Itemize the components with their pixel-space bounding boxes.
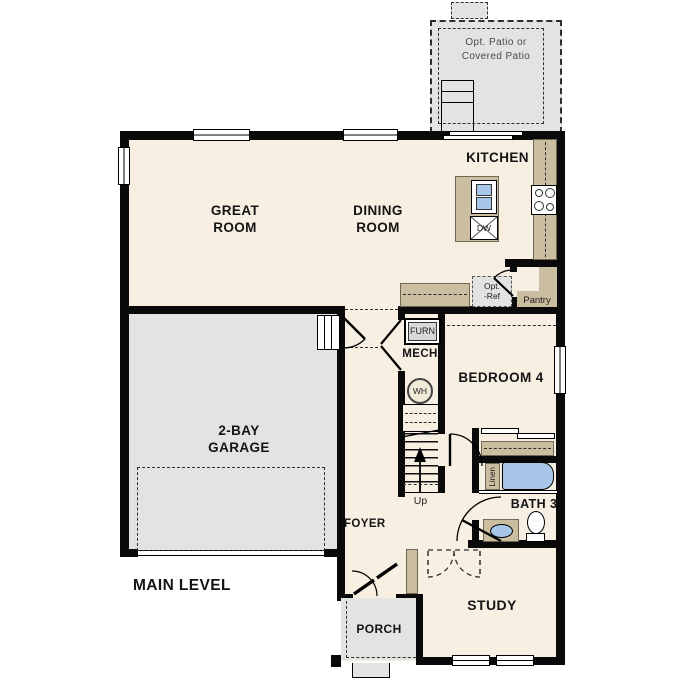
front-door-sidelite bbox=[377, 564, 397, 578]
pantry-door-arc bbox=[494, 270, 513, 278]
mech-bifold-door bbox=[381, 346, 401, 370]
bedroom4-door-arc bbox=[450, 434, 482, 466]
bath3-door-leaf bbox=[462, 520, 501, 541]
door-swing-layer bbox=[0, 0, 687, 687]
bath3-door-arc bbox=[457, 497, 501, 541]
garage-entry-door-arc bbox=[343, 339, 365, 348]
mech-bifold-door bbox=[381, 320, 401, 344]
dishwasher-label: DW bbox=[477, 223, 491, 234]
study-opt-door-arc bbox=[428, 551, 454, 577]
floor-plan: Opt. Patio or Covered Patio bbox=[0, 0, 687, 687]
pantry-door-leaf bbox=[494, 278, 513, 296]
garage-entry-door-leaf bbox=[343, 317, 365, 339]
stairs-break-line bbox=[402, 430, 439, 437]
stairs-arrow-head bbox=[414, 447, 426, 462]
study-opt-door-arc bbox=[454, 551, 480, 577]
front-door-leaf bbox=[354, 580, 374, 594]
